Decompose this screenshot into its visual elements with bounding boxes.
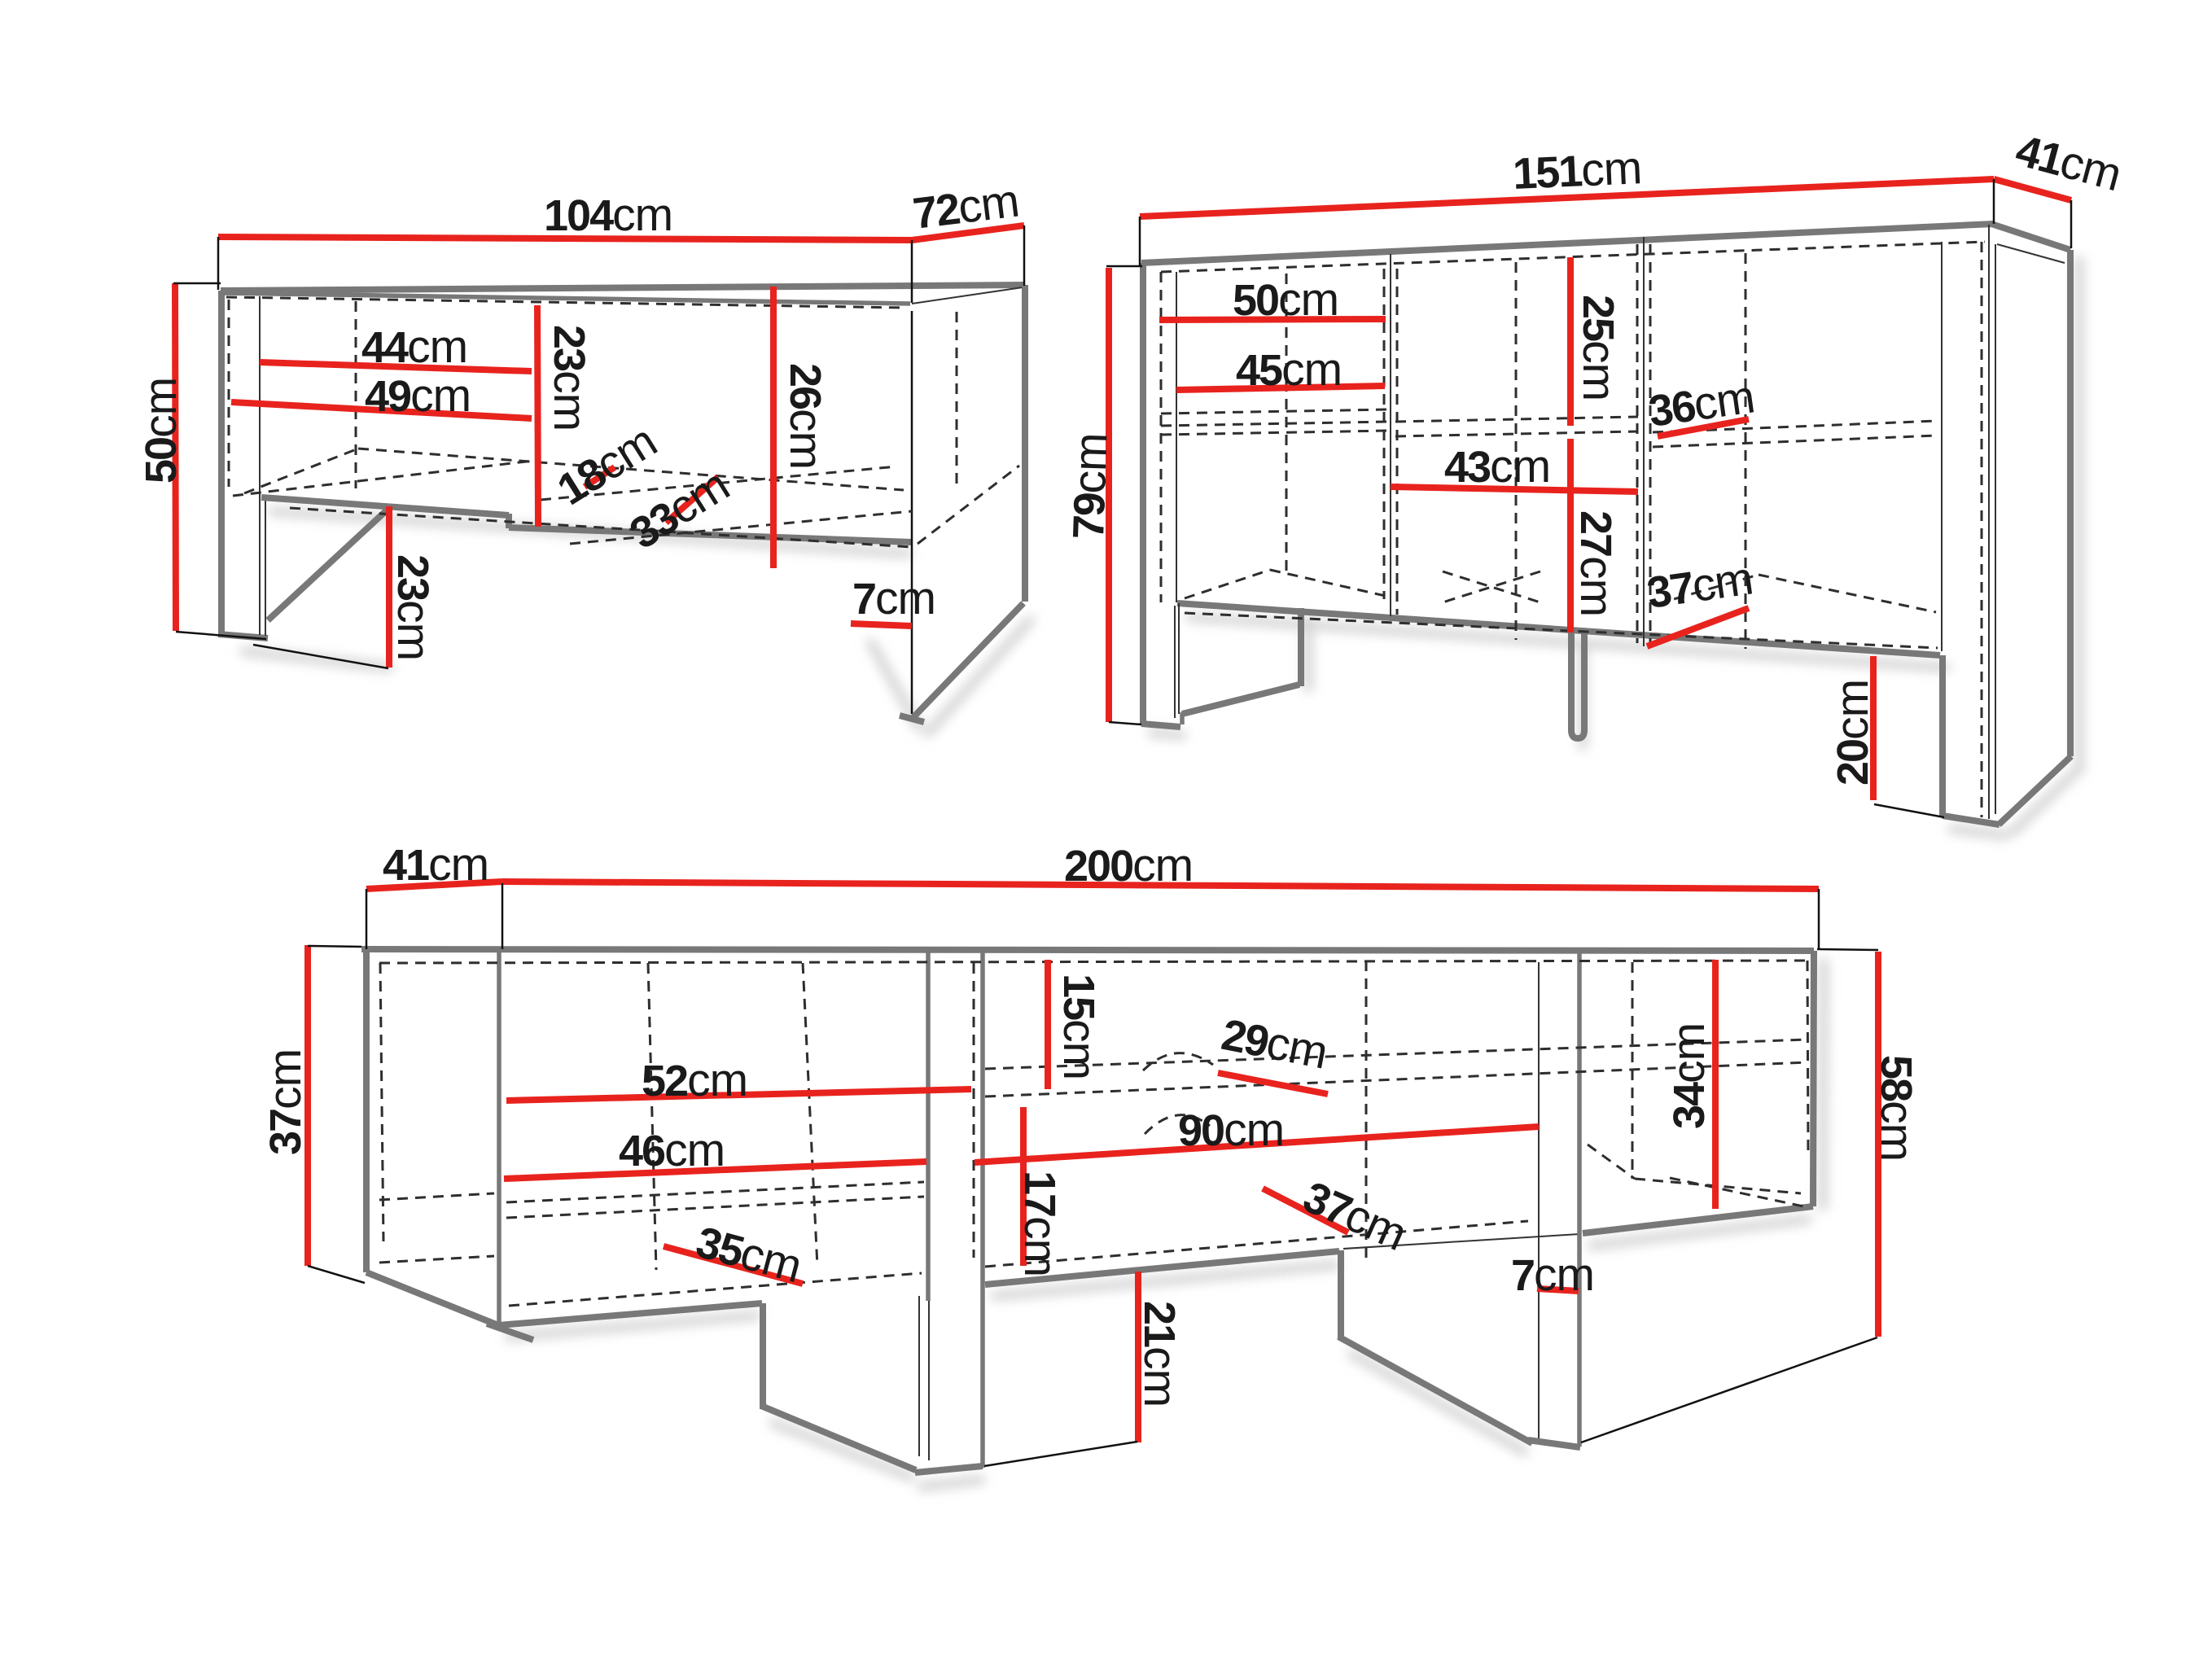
- svg-text:46cm: 46cm: [619, 1124, 725, 1176]
- svg-text:25cm: 25cm: [1573, 295, 1625, 401]
- svg-text:15cm: 15cm: [1053, 974, 1106, 1079]
- svg-text:49cm: 49cm: [365, 370, 471, 422]
- svg-text:37cm: 37cm: [259, 1049, 311, 1155]
- svg-text:45cm: 45cm: [1236, 344, 1342, 396]
- svg-text:21cm: 21cm: [1134, 1301, 1186, 1407]
- svg-text:50cm: 50cm: [134, 378, 186, 484]
- svg-text:58cm: 58cm: [1871, 1055, 1923, 1161]
- svg-text:23cm: 23cm: [544, 325, 596, 431]
- svg-text:20cm: 20cm: [1826, 680, 1878, 786]
- svg-text:26cm: 26cm: [780, 363, 832, 469]
- svg-text:151cm: 151cm: [1512, 142, 1643, 199]
- svg-text:79cm: 79cm: [1062, 432, 1118, 540]
- svg-text:50cm: 50cm: [1233, 274, 1338, 326]
- svg-text:52cm: 52cm: [642, 1054, 747, 1106]
- svg-text:43cm: 43cm: [1444, 440, 1550, 492]
- svg-text:44cm: 44cm: [361, 321, 467, 373]
- svg-text:7cm: 7cm: [852, 572, 935, 624]
- svg-text:27cm: 27cm: [1570, 510, 1623, 616]
- svg-text:17cm: 17cm: [1014, 1171, 1067, 1276]
- svg-text:34cm: 34cm: [1662, 1023, 1715, 1129]
- svg-text:23cm: 23cm: [388, 554, 440, 660]
- svg-text:200cm: 200cm: [1064, 839, 1193, 891]
- svg-text:41cm: 41cm: [383, 838, 488, 891]
- svg-text:7cm: 7cm: [1511, 1249, 1594, 1301]
- svg-text:90cm: 90cm: [1178, 1104, 1284, 1156]
- svg-text:104cm: 104cm: [544, 189, 672, 241]
